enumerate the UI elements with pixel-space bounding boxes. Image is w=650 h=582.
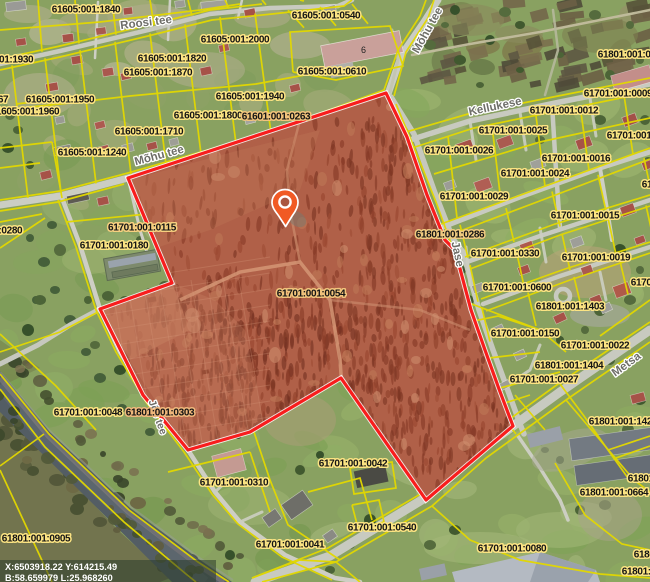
svg-text:61801:001:0303: 61801:001:0303: [126, 408, 195, 419]
svg-text:61701:001:0048: 61701:001:0048: [54, 408, 123, 419]
svg-text:6: 6: [361, 45, 366, 55]
svg-text:61701:001:0026: 61701:001:0026: [425, 146, 494, 157]
svg-text:61801:001:0660: 61801:001:0660: [628, 474, 650, 485]
svg-text:61605:001:1870: 61605:001:1870: [124, 68, 193, 79]
svg-text:61701:001:0115: 61701:001:0115: [108, 223, 177, 234]
svg-text:61701:001:0150: 61701:001:0150: [491, 329, 560, 340]
svg-text:61701:001:0330: 61701:001:0330: [471, 249, 540, 260]
svg-text:61701:001:0027: 61701:001:0027: [510, 375, 579, 386]
svg-text:61801:001:0664: 61801:001:0664: [580, 488, 649, 499]
svg-text:61605:001:1800: 61605:001:1800: [174, 111, 243, 122]
svg-text:61701:001:0041: 61701:001:0041: [256, 540, 325, 551]
svg-text:61701:001:0009: 61701:001:0009: [584, 89, 650, 100]
svg-text:61701:001:0054: 61701:001:0054: [277, 289, 346, 300]
svg-text:61701:001:0019: 61701:001:0019: [562, 253, 631, 264]
svg-text:61605:001:1967: 61605:001:1967: [0, 95, 9, 106]
svg-text:61801:001:0700: 61801:001:0700: [622, 567, 650, 578]
svg-text:61701:001:0016: 61701:001:0016: [542, 154, 611, 165]
svg-text:61701:001:0025: 61701:001:0025: [607, 131, 650, 142]
svg-text:61801:001:1403: 61801:001:1403: [536, 302, 605, 313]
svg-text:61801:001:1421: 61801:001:1421: [589, 417, 650, 428]
svg-text:61701:001:0540: 61701:001:0540: [348, 523, 417, 534]
svg-text:61701:001:0015: 61701:001:0015: [551, 211, 620, 222]
svg-text:61605:001:1940: 61605:001:1940: [216, 92, 285, 103]
svg-text:61605:001:0280: 61605:001:0280: [0, 226, 23, 237]
svg-text:61605:001:1710: 61605:001:1710: [115, 127, 184, 138]
svg-text:61801:001:0540: 61801:001:0540: [598, 50, 650, 61]
svg-text:61605:001:1820: 61605:001:1820: [138, 54, 207, 65]
svg-text:61701:001:0025: 61701:001:0025: [479, 126, 548, 137]
svg-text:61701:001:0180: 61701:001:0180: [80, 241, 149, 252]
svg-text:61701:001:0310: 61701:001:0310: [200, 478, 269, 489]
svg-text:61801:001:0286: 61801:001:0286: [416, 230, 485, 241]
svg-text:61605:001:1960: 61605:001:1960: [0, 107, 60, 118]
svg-text:61605:001:1240: 61605:001:1240: [58, 148, 127, 159]
svg-text:61701:001:0022: 61701:001:0022: [561, 341, 630, 352]
svg-text:B:58.659979 L:25.968260: B:58.659979 L:25.968260: [5, 573, 113, 582]
svg-text:61605:001:0610: 61605:001:0610: [298, 67, 367, 78]
svg-text:61701:001:0012: 61701:001:0012: [530, 106, 599, 117]
svg-text:61605:001:2000: 61605:001:2000: [201, 35, 270, 46]
svg-text:61801:001:0905: 61801:001:0905: [2, 534, 71, 545]
svg-text:61701:001:0080: 61701:001:0080: [478, 544, 547, 555]
svg-text:61605:001:1840: 61605:001:1840: [52, 5, 121, 16]
svg-text:61701:001:0600: 61701:001:0600: [483, 283, 552, 294]
svg-text:61605:001:1950: 61605:001:1950: [26, 95, 95, 106]
svg-text:61605:001:1930: 61605:001:1930: [0, 55, 34, 66]
svg-text:X:6503918.22 Y:614215.49: X:6503918.22 Y:614215.49: [5, 562, 117, 572]
svg-text:61801:001:1404: 61801:001:1404: [535, 361, 604, 372]
svg-text:61701:001:0610: 61701:001:0610: [631, 278, 650, 289]
svg-text:61601:001:0263: 61601:001:0263: [242, 112, 311, 123]
svg-text:61605:001:0540: 61605:001:0540: [292, 11, 361, 22]
svg-text:61701:001:0022: 61701:001:0022: [642, 180, 650, 191]
svg-text:61701:001:0029: 61701:001:0029: [440, 192, 509, 203]
svg-text:61801:001:0664: 61801:001:0664: [634, 550, 650, 561]
svg-text:61701:001:0024: 61701:001:0024: [501, 169, 570, 180]
svg-text:61701:001:0042: 61701:001:0042: [319, 459, 388, 470]
